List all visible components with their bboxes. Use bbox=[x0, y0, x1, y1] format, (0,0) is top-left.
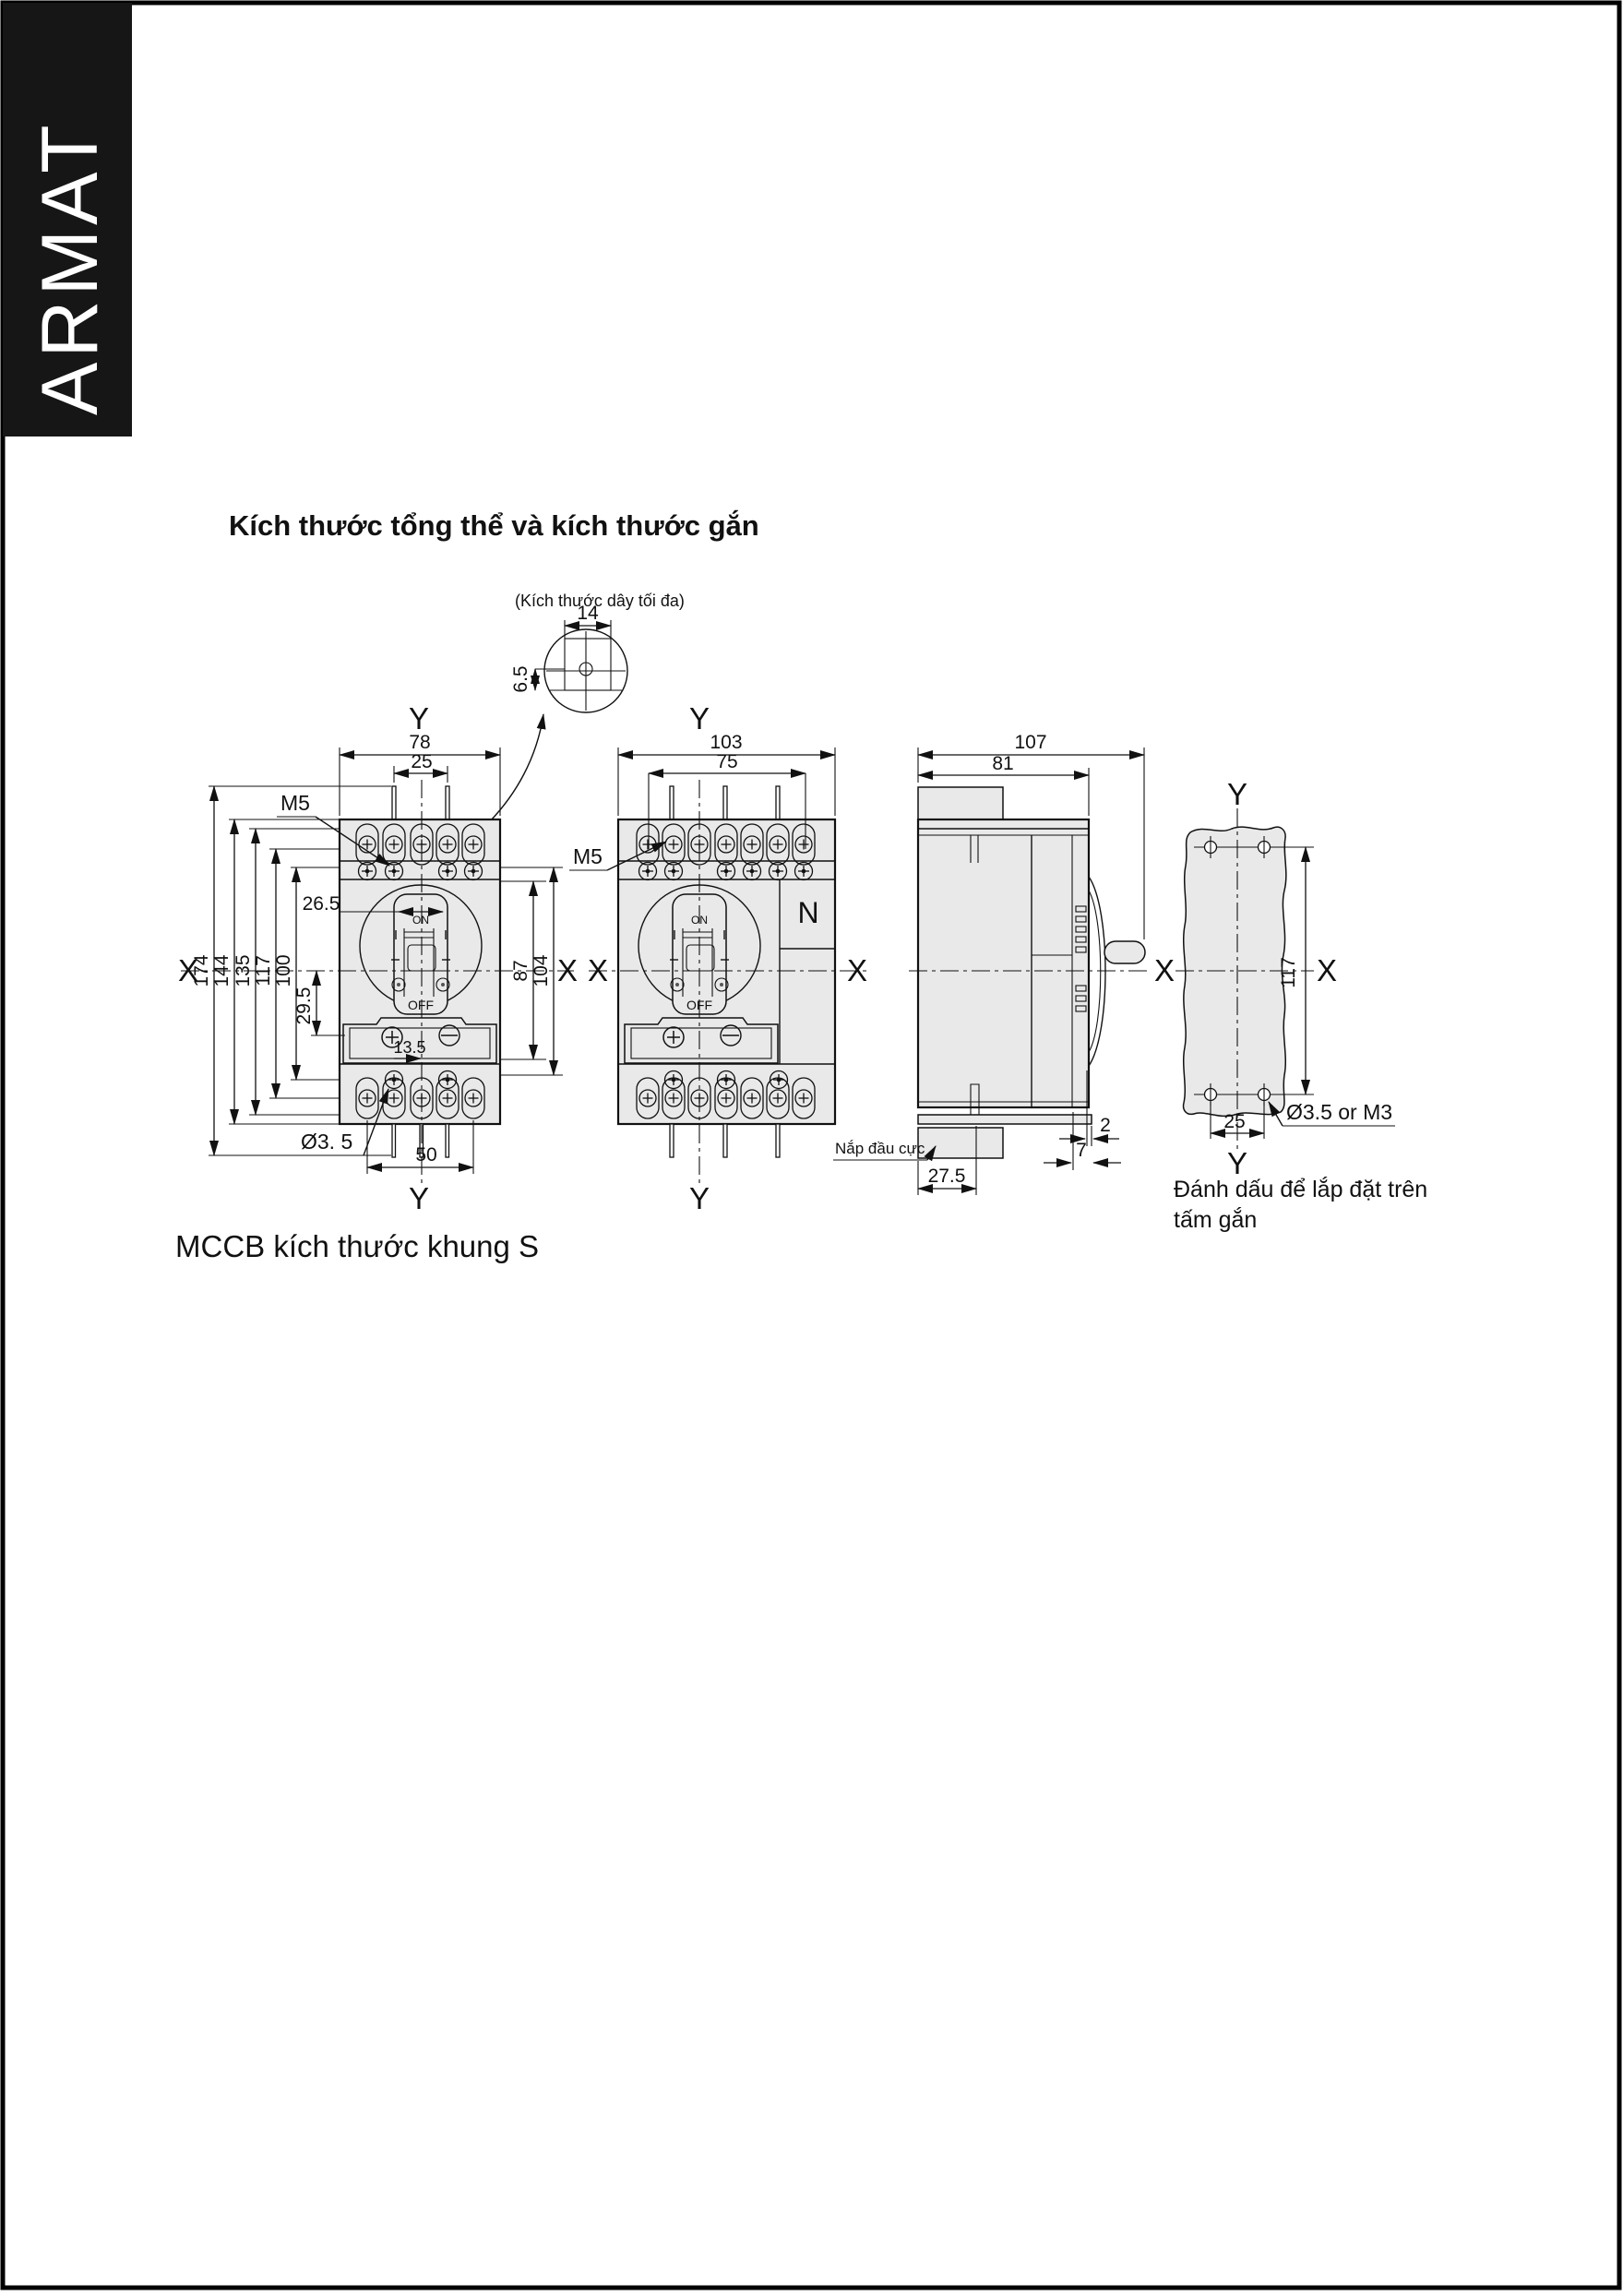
axis-x-plate: X bbox=[1317, 953, 1337, 987]
off-label: OFF bbox=[408, 998, 434, 1012]
section-title: Kích thước tổng thể và kích thước gắn bbox=[229, 508, 759, 542]
right-dimension-stack: 87 104 bbox=[501, 867, 563, 1075]
brand-logo-text: ARMAT bbox=[26, 120, 114, 415]
side-view: X 107 81 2 7 Nắp đầu cực 27.5 bbox=[833, 732, 1175, 1195]
axis-x-left-4p: X bbox=[588, 953, 608, 987]
frame-size-caption: MCCB kích thước khung S bbox=[175, 1229, 539, 1263]
terminal-cover-label: Nắp đầu cực bbox=[835, 1140, 925, 1157]
dim-wire-height: 6.5 bbox=[510, 665, 531, 692]
on-label: ON bbox=[412, 914, 429, 927]
dimension-drawing: ARMAT Kích thước tổng thể và kích thước … bbox=[0, 0, 1623, 2291]
dim-wire-width: 14 bbox=[577, 603, 599, 624]
dim-plate-hole-h: 25 bbox=[1223, 1111, 1245, 1132]
dim-toggle-width: 26.5 bbox=[303, 893, 340, 915]
axis-y-top-plate: Y bbox=[1227, 777, 1247, 811]
dim-depth: 107 bbox=[1014, 732, 1046, 753]
axis-x-right-3p: X bbox=[557, 953, 578, 987]
dim-screw-offset: 13.5 bbox=[393, 1038, 425, 1057]
neutral-pole-label: N bbox=[797, 896, 818, 929]
trip-unit-4p bbox=[625, 1018, 778, 1063]
dim-h-87: 87 bbox=[510, 960, 531, 981]
plate-caption-line2: tấm gắn bbox=[1174, 1206, 1257, 1233]
mccb-body-side bbox=[918, 819, 1089, 1107]
axis-x-side: X bbox=[1154, 953, 1175, 987]
plate-hole-spec: Ø3.5 or M3 bbox=[1286, 1100, 1392, 1124]
dim-depth-body: 81 bbox=[992, 753, 1013, 774]
terminal-cover-top bbox=[918, 787, 1003, 819]
dim-plate-thickness: 2 bbox=[1100, 1115, 1111, 1136]
catalog-page: ARMAT Kích thước tổng thể và kích thước … bbox=[0, 0, 1623, 2291]
dim-overall-width-4p: 103 bbox=[710, 732, 742, 753]
axis-y-bottom-4p: Y bbox=[689, 1181, 710, 1215]
page-border bbox=[3, 3, 1619, 2288]
foot-hole-label: Ø3. 5 bbox=[301, 1130, 352, 1154]
detail-leader bbox=[484, 714, 543, 827]
dim-h-117: 117 bbox=[253, 955, 274, 986]
mounting-plate-view: 117 X Y Y 25 Ø3.5 or M3 Đánh dấu để lắp … bbox=[1174, 777, 1427, 1233]
toggle-handle-side bbox=[1104, 941, 1145, 963]
axis-y-top-4p: Y bbox=[689, 701, 710, 735]
axis-y-top-3p: Y bbox=[409, 701, 429, 735]
mounting-plate-outline bbox=[1184, 827, 1286, 1116]
dim-h-135: 135 bbox=[233, 954, 254, 987]
dim-lead-pitch: 25 bbox=[411, 751, 432, 772]
dim-h-case: 144 bbox=[211, 954, 233, 987]
axis-x-right-4p: X bbox=[847, 953, 867, 987]
dim-plate-hole-v: 117 bbox=[1278, 957, 1299, 987]
axis-y-bottom-plate: Y bbox=[1227, 1146, 1247, 1180]
dim-h-trip: 29.5 bbox=[293, 987, 315, 1025]
wire-note-label: (Kích thước dây tối đa) bbox=[515, 592, 685, 610]
axis-y-bottom-3p: Y bbox=[409, 1181, 429, 1215]
m5-label-3p: M5 bbox=[280, 791, 310, 815]
front-view-4pole: ON OFF N 103 75 Y bbox=[569, 701, 867, 1215]
dim-h-100: 100 bbox=[273, 954, 294, 987]
dim-mount-width-3p: 50 bbox=[415, 1144, 436, 1166]
brand-banner: ARMAT bbox=[3, 3, 132, 436]
m5-label-4p: M5 bbox=[573, 844, 603, 868]
trip-unit-3p: 13.5 bbox=[343, 1018, 496, 1063]
base-plate bbox=[918, 1115, 1092, 1124]
dim-h-104: 104 bbox=[531, 954, 552, 987]
dim-mount-width-4p: 75 bbox=[716, 751, 737, 772]
dim-cover-depth: 27.5 bbox=[928, 1166, 966, 1187]
plate-caption-line1: Đánh dấu để lắp đặt trên bbox=[1174, 1176, 1427, 1202]
dim-h-overall: 174 bbox=[191, 954, 212, 987]
dim-gap: 7 bbox=[1076, 1140, 1087, 1161]
front-view-3pole: ON OFF 26.5 13.5 bbox=[178, 701, 578, 1215]
